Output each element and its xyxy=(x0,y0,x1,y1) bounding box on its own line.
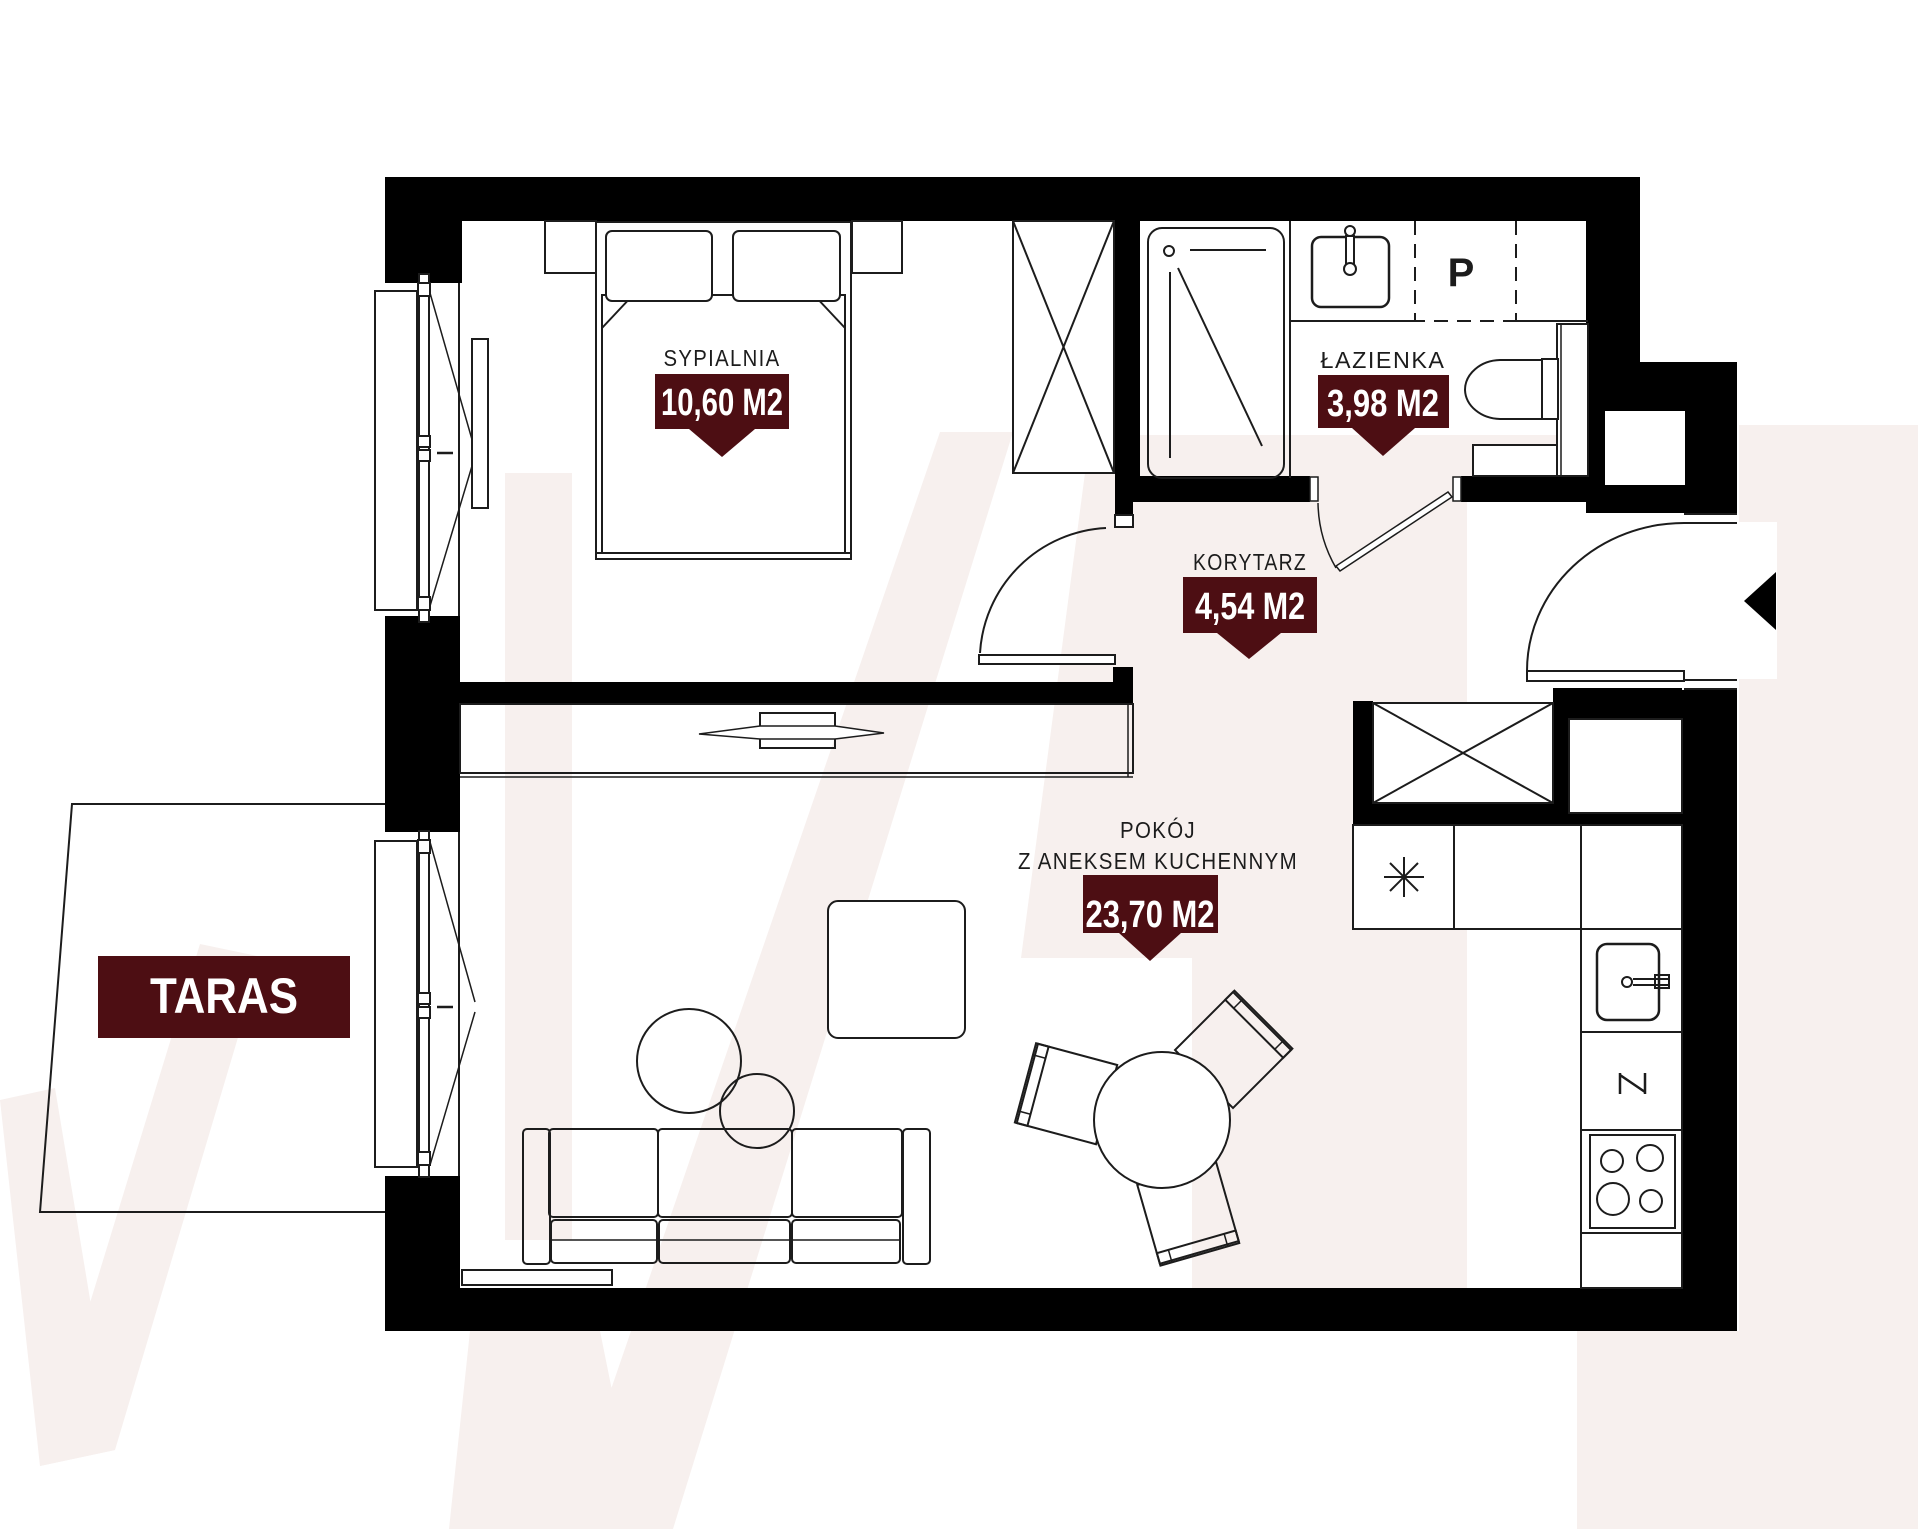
svg-text:KORYTARZ: KORYTARZ xyxy=(1193,549,1307,575)
svg-text:23,70 M2: 23,70 M2 xyxy=(1086,894,1215,936)
svg-text:4,54 M2: 4,54 M2 xyxy=(1195,586,1305,628)
svg-text:P: P xyxy=(1448,251,1475,295)
svg-text:ŁAZIENKA: ŁAZIENKA xyxy=(1321,347,1446,373)
svg-text:SYPIALNIA: SYPIALNIA xyxy=(664,345,781,371)
svg-text:10,60 M2: 10,60 M2 xyxy=(661,382,783,424)
svg-text:POKÓJ: POKÓJ xyxy=(1120,817,1196,843)
svg-text:Z ANEKSEM KUCHENNYM: Z ANEKSEM KUCHENNYM xyxy=(1018,848,1298,874)
svg-text:TARAS: TARAS xyxy=(150,968,298,1024)
svg-text:3,98 M2: 3,98 M2 xyxy=(1327,383,1439,425)
